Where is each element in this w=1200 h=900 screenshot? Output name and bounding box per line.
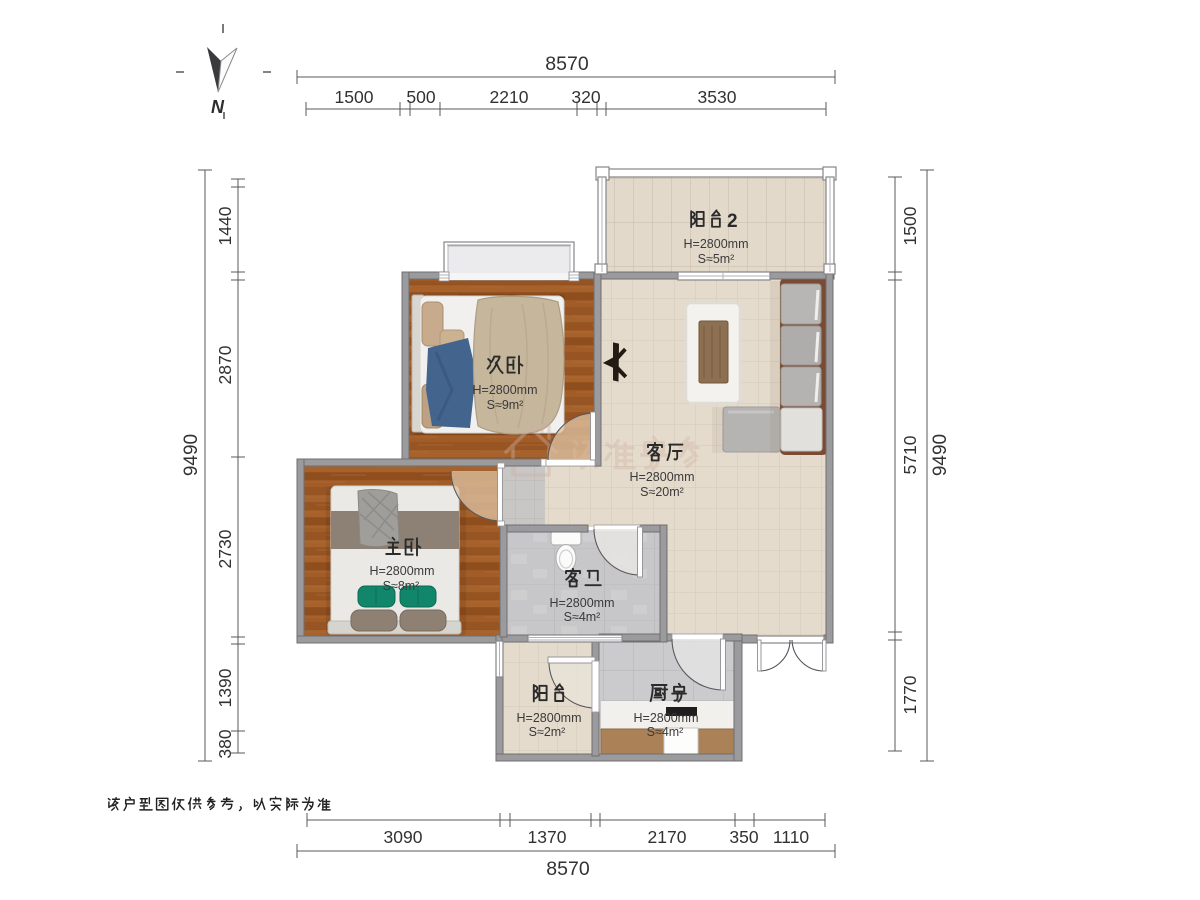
svg-text:500: 500: [406, 87, 435, 107]
svg-text:2: 2: [727, 211, 738, 232]
svg-text:8570: 8570: [546, 858, 590, 880]
svg-text:H=2800mm: H=2800mm: [550, 596, 615, 610]
svg-text:S≈4m²: S≈4m²: [564, 610, 601, 624]
svg-text:1500: 1500: [900, 206, 920, 245]
svg-text:H=2800mm: H=2800mm: [634, 711, 699, 725]
svg-text:2870: 2870: [215, 345, 235, 384]
svg-text:350: 350: [729, 827, 758, 847]
svg-text:2210: 2210: [490, 87, 529, 107]
svg-text:S≈2m²: S≈2m²: [529, 725, 566, 739]
svg-text:380: 380: [215, 729, 235, 758]
svg-text:H=2800mm: H=2800mm: [630, 470, 695, 484]
svg-text:8570: 8570: [545, 53, 589, 75]
svg-text:1770: 1770: [900, 675, 920, 714]
svg-text:2170: 2170: [648, 827, 687, 847]
svg-text:S≈8m²: S≈8m²: [383, 579, 420, 593]
svg-text:S≈9m²: S≈9m²: [487, 398, 524, 412]
svg-text:2730: 2730: [215, 529, 235, 568]
svg-text:9490: 9490: [181, 434, 202, 476]
svg-text:3530: 3530: [698, 87, 737, 107]
svg-text:N: N: [211, 97, 225, 117]
svg-text:H=2800mm: H=2800mm: [684, 237, 749, 251]
svg-text:H=2800mm: H=2800mm: [517, 711, 582, 725]
svg-text:1390: 1390: [215, 668, 235, 707]
svg-text:5710: 5710: [900, 435, 920, 474]
svg-text:H=2800mm: H=2800mm: [473, 383, 538, 397]
svg-text:S≈20m²: S≈20m²: [640, 485, 684, 499]
svg-text:3090: 3090: [384, 827, 423, 847]
svg-text:9490: 9490: [930, 434, 951, 476]
svg-text:1370: 1370: [528, 827, 567, 847]
svg-text:1110: 1110: [773, 827, 810, 847]
svg-text:1500: 1500: [335, 87, 374, 107]
svg-text:S≈4m²: S≈4m²: [647, 725, 684, 739]
svg-text:H=2800mm: H=2800mm: [370, 564, 435, 578]
svg-text:320: 320: [571, 87, 600, 107]
svg-text:1440: 1440: [215, 206, 235, 245]
svg-text:S≈5m²: S≈5m²: [698, 252, 735, 266]
